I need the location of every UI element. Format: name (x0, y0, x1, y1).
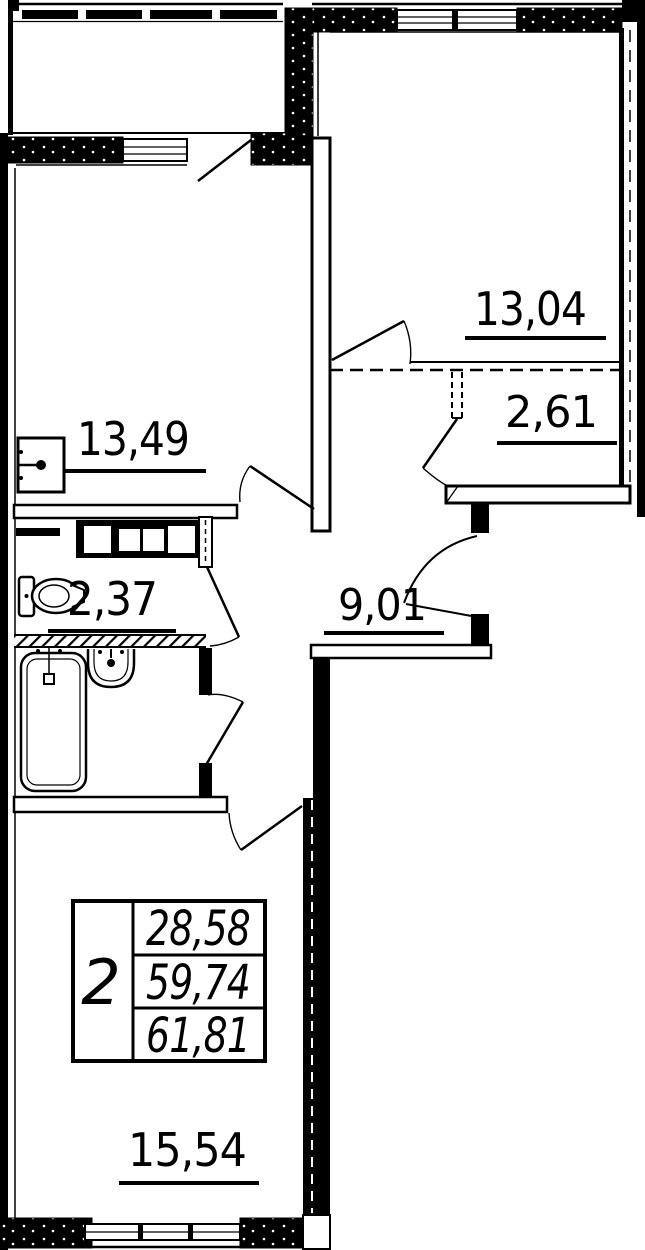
balcony (8, 0, 318, 136)
window-mullion (138, 1224, 143, 1240)
wc-door-leaf (207, 567, 239, 637)
vent-shaft (16, 520, 202, 558)
living-area-label: 15,54 (128, 1123, 246, 1177)
closet-door-arc (423, 468, 450, 487)
kitchen-sink (18, 438, 64, 492)
apartment-area-value: 59,74 (146, 955, 250, 1011)
washbasin (88, 649, 134, 687)
bedroom-north-wall (312, 0, 645, 32)
entrance-jamb-top (471, 503, 489, 533)
kitchen-door-arc (240, 466, 250, 502)
floor-plan-drawing: 13,04 2,61 13,49 2,37 9,01 15,54 2 28,58… (0, 0, 645, 1250)
living-door-arc (229, 813, 241, 850)
west-wall (0, 133, 15, 1250)
wc-door-arc (210, 637, 239, 646)
floor-plan: 13,04 2,61 13,49 2,37 9,01 15,54 2 28,58… (0, 0, 645, 1250)
kitchen-area-label: 13,49 (77, 412, 189, 466)
kitchen-door-leaf (250, 466, 314, 509)
bedroom-door-leaf (332, 321, 404, 360)
party-wall (303, 658, 330, 1249)
entrance-jamb-bottom (471, 614, 489, 644)
closet-door-leaf (423, 419, 457, 468)
info-table: 2 28,58 59,74 61,81 (73, 901, 265, 1064)
bathtub (21, 648, 86, 791)
kitchen-north-wall (3, 133, 312, 181)
balcony-west-wall (8, 4, 13, 135)
living-area-total-value: 28,58 (146, 901, 250, 957)
rooms-count-value: 2 (81, 946, 120, 1019)
bedroom-west-wall (312, 138, 330, 531)
bathroom-door-leaf (206, 702, 243, 765)
bedroom-door-arc (404, 321, 411, 364)
bathroom-door-arc (208, 694, 243, 702)
kitchen-window (123, 139, 187, 161)
hall-area-label: 9,01 (338, 580, 426, 631)
total-area-value: 61,81 (146, 1008, 250, 1064)
bathroom-south-wall (14, 797, 227, 812)
hall-south-wall (311, 645, 491, 658)
living-door-leaf (241, 806, 302, 850)
balcony-glazing (22, 10, 277, 19)
bedroom-area-label: 13,04 (474, 282, 586, 336)
wc-south-partition (14, 636, 206, 647)
wc-area-label: 2,37 (67, 572, 157, 626)
closet-area-label: 2,61 (505, 387, 597, 438)
wall-panel-corner (251, 133, 312, 165)
balcony-east-column (285, 8, 313, 136)
window-mullion (452, 10, 458, 30)
closet-south-wall (446, 486, 630, 503)
wall-panel (3, 137, 123, 163)
balcony-door-leaf (198, 140, 251, 181)
window-mullion (188, 1224, 193, 1240)
south-wall (0, 1218, 303, 1248)
living-room-door (229, 806, 302, 850)
east-wall (619, 0, 645, 517)
